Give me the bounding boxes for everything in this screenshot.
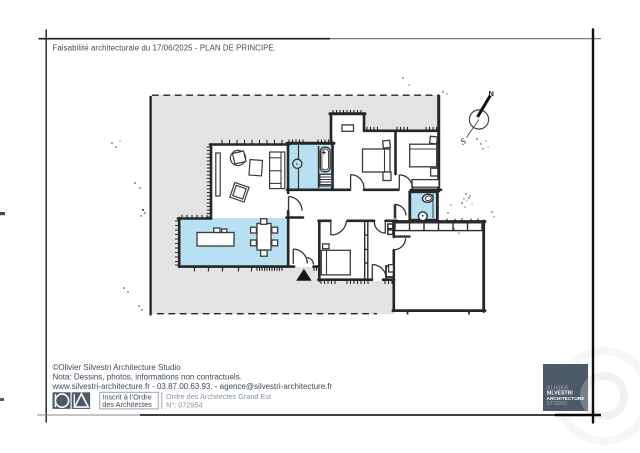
- svg-text:N°: 072954: N°: 072954: [166, 401, 203, 410]
- svg-text:©Olivier Silvestri Architectur: ©Olivier Silvestri Architecture Studio: [53, 363, 182, 372]
- svg-text:www.silvestri-architecture.fr: www.silvestri-architecture.fr - 03.87.00…: [52, 382, 333, 391]
- svg-text:N: N: [489, 89, 494, 98]
- svg-text:STUDIO: STUDIO: [547, 401, 568, 407]
- svg-text:Faisabilité architecturale du: Faisabilité architecturale du 17/06/2025…: [53, 44, 277, 53]
- svg-text:Nota: Dessins, photos, informa: Nota: Dessins, photos, informations non …: [53, 372, 242, 381]
- svg-text:SILVESTRI: SILVESTRI: [547, 391, 574, 397]
- svg-text:des Architectes: des Architectes: [102, 400, 152, 409]
